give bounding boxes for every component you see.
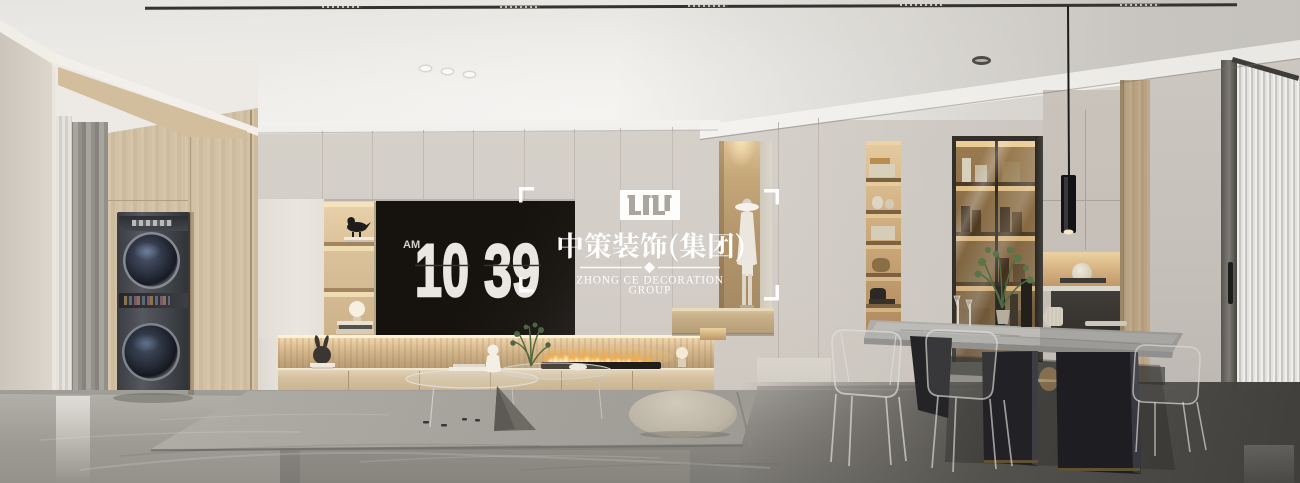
svg-text:39: 39 (484, 229, 540, 312)
svg-text:GROUP: GROUP (629, 285, 671, 297)
svg-text:10: 10 (415, 229, 469, 312)
